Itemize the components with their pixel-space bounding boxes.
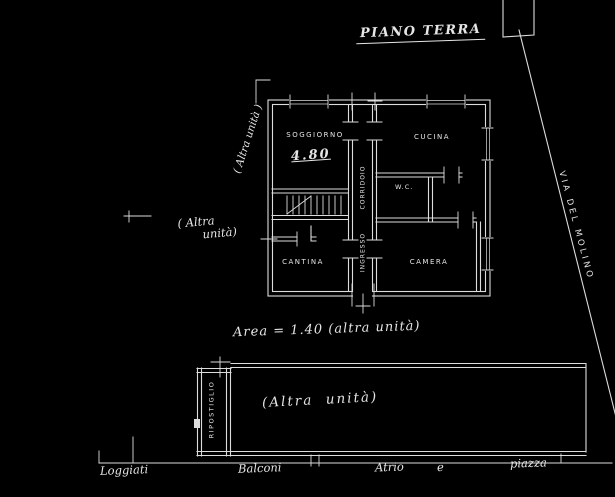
ground-label-piazza: piazza	[510, 455, 547, 470]
floor-plan-linework	[0, 0, 615, 497]
ground-label-balconi: Balconi	[238, 460, 282, 476]
dimension-text: 4.80	[291, 147, 332, 165]
ground-label-atrio: Atrio	[375, 460, 404, 475]
window-marks	[290, 95, 493, 270]
room-label-cantina: CANTINA	[272, 258, 334, 266]
room-label-ingresso: INGRESSO	[360, 228, 369, 278]
staircase	[287, 196, 341, 214]
room-label-wc: W.C.	[395, 183, 413, 191]
ground-label-loggiati: Loggiati	[100, 462, 149, 478]
wall-openings	[289, 96, 493, 298]
room-label-ripostiglio: RIPOSTIGLIO	[208, 370, 217, 450]
interior-partitions	[261, 167, 481, 292]
floor-plan-canvas: PIANO TERRA SOGGIORNO 4.80 CUCINA W.C. C…	[0, 0, 615, 497]
room-label-soggiorno: SOGGIORNO	[283, 131, 347, 139]
room-label-cucina: CUCINA	[404, 133, 460, 141]
room-label-camera: CAMERA	[398, 258, 460, 266]
other-unit-note: ( Altraunità)	[177, 213, 238, 244]
ground-label-e: e	[437, 460, 444, 474]
room-label-corridoio: CORRIDOIO	[360, 160, 369, 216]
lower-block-walls	[194, 357, 586, 456]
sheet-frame-corner	[503, 0, 534, 37]
house-outer-walls	[268, 100, 490, 296]
street-boundary-line	[519, 30, 615, 445]
